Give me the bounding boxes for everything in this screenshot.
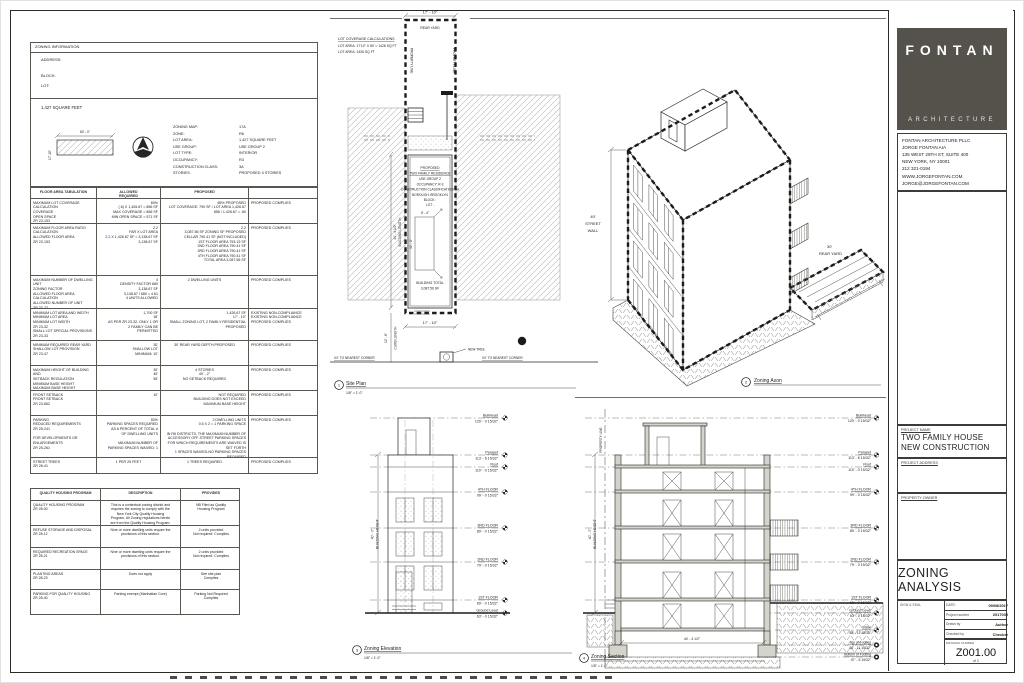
logo-subtitle: ARCHITECTURE <box>897 117 1007 123</box>
field-label: ZONE: <box>173 132 239 136</box>
room-dim-h: 32' - 0" <box>409 239 413 249</box>
row-status: PROPOSED COMPLIES <box>249 366 319 390</box>
table-row: MINIMUM LOT AREA AND WIDTH MINIMUM LOT A… <box>31 309 317 341</box>
row-item: REFUSE STORAGE AND DISPOSAL ZR 28-12 <box>31 526 101 547</box>
row-provided: See site plan Complies <box>181 570 241 589</box>
fat-col-header: ALLOWED REQUIRED <box>97 188 161 198</box>
row-allowed: 4 DENSITY FACTOR 680 3,138.67 SF 3,138.6… <box>97 276 161 308</box>
level-marker: Bottom of Footing 57' - 5 15/32" <box>844 653 879 662</box>
qh-col-header: PROVIDED <box>181 489 241 500</box>
property-owner-label: PROPERTY OWNER <box>898 494 1006 500</box>
svg-text:113' - 6 15/32": 113' - 6 15/32" <box>848 456 872 460</box>
svg-text:99' - 0 15/32": 99' - 0 15/32" <box>850 493 872 497</box>
building-total: BUILDING TOTAL <box>416 281 444 285</box>
svg-text:1/8" = 1'-0": 1/8" = 1'-0" <box>346 391 363 395</box>
field-label: ZONING MAP: <box>173 125 239 129</box>
row-status: PROPOSED COMPLIES <box>249 391 319 415</box>
svg-text:58' - 11 15/32": 58' - 11 15/32" <box>849 646 871 650</box>
contact-line: 135 WEST 29TH ST, SUITE 400 <box>902 151 1002 158</box>
lot-dim-top: 80' - 0" <box>80 130 90 134</box>
row-status: EXISTING NON-COMPLIANCE EXISTING NON-COM… <box>249 309 319 340</box>
front-facade <box>365 418 510 613</box>
row-description: Nine or more dwelling units require the … <box>101 548 181 569</box>
svg-text:Zoning Section: Zoning Section <box>591 654 625 660</box>
field-label: USE GROUP: <box>173 145 239 149</box>
svg-text:LOT :: LOT : <box>426 203 434 207</box>
row-proposed: 2.2 3,087.56 SF ZONING SF PROPOSED CELLA… <box>161 224 249 275</box>
svg-text:2ND FLOOR: 2ND FLOOR <box>477 558 498 562</box>
svg-text:99' - 0 15/32": 99' - 0 15/32" <box>477 493 499 497</box>
level-marker: 3RD FLOOR 89' - 0 15/32" <box>477 524 507 534</box>
row-status: PROPOSED COMPLIES <box>249 416 319 457</box>
svg-text:3RD FLOOR: 3RD FLOOR <box>477 524 498 528</box>
row-proposed: 2 DWELLING UNITS 0.5 X 2 = 1 PARKING SPA… <box>161 416 249 457</box>
row-description: Parking exempt (Manhattan Core) <box>101 590 181 614</box>
field-value: USE GROUP 2 <box>239 145 317 149</box>
svg-text:1/8" = 1'-0": 1/8" = 1'-0" <box>591 664 608 668</box>
checked-by-value: Checker <box>972 632 1008 637</box>
svg-text:NEW TREE: NEW TREE <box>468 348 485 352</box>
table-row: MAXIMUM HEIGHT OF BUILDING AND SETBACK R… <box>31 366 317 391</box>
sheet-of: of 2 <box>945 659 1007 663</box>
contact-line: WWW.JORGEFONTAN.COM <box>902 173 1002 180</box>
svg-text:3,087.56 SF: 3,087.56 SF <box>421 287 439 291</box>
level-marker: Bulkhead 120' - 0 15/32" <box>848 413 879 423</box>
row-proposed: 1 TREES REQUIRED <box>161 458 249 473</box>
row-item: PARKING REDUCED REQUIREMENTS ZR 25-241 F… <box>31 416 97 457</box>
svg-text:4: 4 <box>583 656 586 661</box>
building-length-label: BUILDING LENGTH <box>398 217 402 247</box>
svg-text:4TH FLOOR: 4TH FLOOR <box>478 488 499 492</box>
svg-text:CONSTRUCTION CLASSIFICATION: 3: CONSTRUCTION CLASSIFICATION: 3A <box>401 188 460 192</box>
seal-label: SIGN & SEAL <box>900 603 921 607</box>
svg-text:LOT AREA: 1426 SQ FT: LOT AREA: 1426 SQ FT <box>338 50 375 54</box>
svg-text:79' - 0 15/32": 79' - 0 15/32" <box>477 563 499 567</box>
level-marker: Parapet 113' - 6 15/32" <box>848 450 879 460</box>
zoning-axon-title: 2 Zoning Axon <box>742 378 881 387</box>
svg-text:REAR YARD: REAR YARD <box>819 251 842 256</box>
row-status: PROPOSED COMPLIES <box>249 199 319 223</box>
svg-text:TWO FAMILY RESIDENCE: TWO FAMILY RESIDENCE <box>409 172 451 176</box>
field-label: STORIES: <box>173 171 239 175</box>
zoning-elevation-title: 3 Zoning Elevation 1/8" = 1'-0" <box>353 646 572 660</box>
seal-box: SIGN & SEAL <box>898 601 945 665</box>
date-value: 09/08/2017 <box>972 603 1008 608</box>
svg-text:BUILDING HEIGHT: BUILDING HEIGHT <box>376 519 380 549</box>
row-item: MAXIMUM HEIGHT OF BUILDING AND SETBACK R… <box>31 366 97 390</box>
row-provided: 2 units provided Not required. Complies <box>181 526 241 547</box>
project-address-box: PROJECT ADDRESS <box>897 458 1007 493</box>
row-provided: NB Filed as Quality Housing Program <box>181 501 241 525</box>
curb-label: CURB LENGTH <box>394 326 398 350</box>
table-row: REFUSE STORAGE AND DISPOSAL ZR 28-12 Nin… <box>31 526 239 548</box>
row-item: STREET TREES ZR 26-41 <box>31 458 97 473</box>
building-height-dim: 40' - 0" BUILDING HEIGHT <box>371 452 382 615</box>
building-height-dim: 40' - 0" BUILDING HEIGHT <box>588 452 598 615</box>
room-dim-w: 8' - 4" <box>421 211 429 215</box>
row-allowed: 30' SHALLOW LOT MINIMUM: 10' <box>97 341 161 365</box>
row-allowed: 2.2 FAR X LOT AREA 2.2 X 1,426.67 SF = 3… <box>97 224 161 275</box>
zoning-elevation-drawing: 40' - 0" BUILDING HEIGHT Bulkhead 120' -… <box>350 400 575 668</box>
row-item: MAXIMUM LOT COVERAGE CALCULATION COVERAG… <box>31 199 97 223</box>
svg-text:40' - 0": 40' - 0" <box>588 528 592 539</box>
row-item: QUALITY HOUSING PROGRAM ZR 28-00 <box>31 501 101 525</box>
lot-diagram: 80' - 0" 17'-10" <box>45 119 170 179</box>
table-row: FRONT SETBACK FRONT SETBACK ZR 23-662 10… <box>31 391 317 416</box>
level-marker: Roof 110' - 0 15/32" <box>475 463 507 473</box>
svg-text:Parapet: Parapet <box>858 450 871 454</box>
row-status: PROPOSED COMPLIES <box>249 224 319 275</box>
corner-note-right: XX' TO NEAREST CORNER <box>482 356 523 360</box>
contact-line: JORGE FONTAN AIA <box>902 144 1002 151</box>
contact-line: 212 321-0194 <box>902 165 1002 172</box>
drawing-number-label: DRAWING NUMBER <box>946 641 974 645</box>
svg-text:PROPOSED: PROPOSED <box>420 166 440 170</box>
date-label: DATE: <box>946 603 972 607</box>
row-status: PROPOSED COMPLIES <box>249 341 319 365</box>
lot-dim-side: 17'-10" <box>48 150 52 160</box>
field-value: R6 <box>239 132 317 136</box>
drawing-number-box: DRAWING NUMBER Z001.00 of 2 <box>945 639 1007 669</box>
building-length-dim: 44' - 4 1/2" <box>393 224 397 239</box>
quality-housing-table: QUALITY HOUSING PROGRAM DESCRIPTION PROV… <box>30 488 240 615</box>
svg-text:2ND FLOOR: 2ND FLOOR <box>850 557 871 561</box>
svg-text:63' - 0 15/32": 63' - 0 15/32" <box>850 614 872 618</box>
svg-text:3: 3 <box>356 648 359 653</box>
logo-wordmark: FONTAN <box>897 42 1007 58</box>
svg-text:Zoning Elevation: Zoning Elevation <box>364 646 401 652</box>
table-row: PARKING FOR QUALITY HOUSING ZR 28-40 Par… <box>31 590 239 615</box>
project-address-label: PROJECT ADDRESS <box>898 459 1006 465</box>
svg-text:LOT COVERAGE CALCULATIONS: LOT COVERAGE CALCULATIONS <box>338 37 395 41</box>
svg-text:79' - 0 15/32": 79' - 0 15/32" <box>850 563 872 567</box>
row-item: MINIMUM LOT AREA AND WIDTH MINIMUM LOT A… <box>31 309 97 340</box>
project-number-value: 2017030 <box>972 612 1008 617</box>
fat-col-header: FLOOR AREA TABULATION <box>31 188 97 198</box>
row-allowed: 10' <box>97 391 161 415</box>
level-marker: 4TH FLOOR 99' - 0 15/32" <box>477 488 507 498</box>
svg-text:LOT AREA: 17'10" X 80' = 1426: LOT AREA: 17'10" X 80' = 1426 SQ FT <box>338 44 397 48</box>
sheet-title-box: ZONING ANALYSIS <box>897 560 1007 600</box>
table-row: MINIMUM REQUIRED REAR YARD SHALLOW LOT P… <box>31 341 317 366</box>
table-row: MAXIMUM NUMBER OF DWELLING UNIT ZONING F… <box>31 276 317 309</box>
row-item: MAXIMUM FLOOR AREA RATIO CALCULATION ALL… <box>31 224 97 275</box>
new-tree: NEW TREE <box>440 348 485 363</box>
table-row: QUALITY HOUSING PROGRAM ZR 28-00 This is… <box>31 501 239 526</box>
table-row: PLANTING AREAS ZR 28-23 Does not apply S… <box>31 570 239 590</box>
qh-col-header: QUALITY HOUSING PROGRAM <box>31 489 101 500</box>
svg-text:WALL: WALL <box>588 228 600 233</box>
svg-text:3RD FLOOR: 3RD FLOOR <box>850 523 871 527</box>
level-marker: Roof 110' - 0 15/32" <box>848 462 879 472</box>
checked-by-label: Checked by <box>946 632 972 636</box>
row-provided: 2 units provided Not required. Complies <box>181 548 241 569</box>
svg-text:69' - 0 15/32": 69' - 0 15/32" <box>477 601 499 605</box>
field-value: PROPOSED 4 STORIES <box>239 171 317 175</box>
row-allowed: 50% PARKING SPACES REQUIRED AS A PERCENT… <box>97 416 161 457</box>
table-row: MAXIMUM LOT COVERAGE CALCULATION COVERAG… <box>31 199 317 224</box>
svg-text:110' - 0 15/32": 110' - 0 15/32" <box>475 468 499 472</box>
level-marker: Bulkhead 120' - 0 15/32" <box>475 414 507 424</box>
level-marker: 2ND FLOOR 79' - 0 15/32" <box>477 558 507 568</box>
row-status: PROPOSED COMPLIES <box>249 458 319 473</box>
zoning-info-title: ZONING INFORMATION <box>31 43 317 50</box>
svg-text:69' - 0 15/32": 69' - 0 15/32" <box>850 601 872 605</box>
rear-balconies <box>790 178 808 294</box>
row-proposed: NOT REQUIRED BUILDING DOES NOT EXCEED MA… <box>161 391 249 415</box>
curb-dim: 12' - 6" <box>384 333 388 343</box>
drawn-by-value: Author <box>972 622 1008 627</box>
project-name-line2: NEW CONSTRUCTION <box>898 442 1006 452</box>
svg-text:BUILDING HEIGHT: BUILDING HEIGHT <box>593 519 597 549</box>
svg-text:Roof: Roof <box>490 463 498 467</box>
property-line-label-left: PROPERTY LINE <box>410 48 414 73</box>
row-proposed: 30' REAR YARD DEPTH PROPOSED <box>161 341 249 365</box>
block-label: BLOCK: <box>41 74 56 79</box>
svg-text:Bulkhead: Bulkhead <box>483 414 498 418</box>
fat-col-header: PROPOSED <box>161 188 249 198</box>
row-item: PARKING FOR QUALITY HOUSING ZR 28-40 <box>31 590 101 614</box>
svg-text:89' - 0 15/32": 89' - 0 15/32" <box>850 529 872 533</box>
svg-text:1ST FLOOR: 1ST FLOOR <box>851 595 871 599</box>
drawn-by-label: Drawn by <box>946 622 972 626</box>
title-block: FONTAN ARCHITECTURE FONTAN ARCHITECTURE … <box>888 10 1013 671</box>
corner-note-left: XX' TO NEAREST CORNER <box>334 356 375 360</box>
row-proposed: 1,426.67 SF 17' - 10" SMALL ZONING LOT, … <box>161 309 249 340</box>
zoning-fields: ZONING MAP:17A ZONE:R6 LOT AREA:1,427 SQ… <box>173 125 317 175</box>
row-description: Does not apply <box>101 570 181 589</box>
table-row: STREET TREES ZR 26-41 1 PER 25 FEET 1 TR… <box>31 458 317 474</box>
row-allowed: 1,700 SF 18' AS PER ZR 23-32, ONLY 1 OR … <box>97 309 161 340</box>
bottom-dim: 44' - 4 1/2" <box>619 637 766 645</box>
project-name-line1: TWO FAMILY HOUSE <box>898 432 1006 442</box>
svg-text:89' - 0 15/32": 89' - 0 15/32" <box>477 529 499 533</box>
firm-contact-info: FONTAN ARCHITECTURE PLLC JORGE FONTAN AI… <box>897 133 1007 191</box>
level-marker: Ground Level 63' - 0 15/32" <box>476 609 507 619</box>
row-description: This is a contextual zoning district and… <box>101 501 181 525</box>
row-item: MINIMUM REQUIRED REAR YARD SHALLOW LOT P… <box>31 341 97 365</box>
level-marker: 3RD FLOOR 89' - 0 15/32" <box>850 523 879 533</box>
meta-box: SIGN & SEAL DATE:09/08/2017 Project numb… <box>897 600 1007 664</box>
svg-text:44' - 4 1/2": 44' - 4 1/2" <box>684 637 701 641</box>
address-label: ADDRESS: <box>41 58 61 63</box>
svg-text:Top of Footing: Top of Footing <box>850 641 872 645</box>
svg-text:1ST FLOOR: 1ST FLOOR <box>478 596 498 600</box>
north-arrow-icon <box>133 137 153 158</box>
svg-text:Bottom of Footing: Bottom of Footing <box>844 653 871 657</box>
row-description: Nine or more dwelling units require the … <box>101 526 181 547</box>
contact-line: JORGE@JORGEFONTAN.COM <box>902 180 1002 187</box>
field-value: INTERIOR <box>239 151 317 155</box>
fontan-logo: FONTAN ARCHITECTURE <box>897 28 1007 130</box>
svg-text:120' - 0 15/32": 120' - 0 15/32" <box>848 419 872 423</box>
svg-text:1/8" = 1'-0": 1/8" = 1'-0" <box>364 656 381 660</box>
row-item: MAXIMUM NUMBER OF DWELLING UNIT ZONING F… <box>31 276 97 308</box>
field-value: 1,427 SQUARE FEET <box>239 138 317 142</box>
meta-rows: DATE:09/08/2017 Project number2017030 Dr… <box>945 601 1007 669</box>
table-row: MAXIMUM FLOOR AREA RATIO CALCULATION ALL… <box>31 224 317 276</box>
field-label: LOT AREA: <box>173 138 239 142</box>
svg-text:63' - 0 15/32": 63' - 0 15/32" <box>477 614 499 618</box>
field-label: LOT TYPE: <box>173 151 239 155</box>
svg-text:BLOCK :: BLOCK : <box>424 198 437 202</box>
site-bottom-dim: 17' - 10" <box>423 320 438 325</box>
level-marker: Parapet 113' - 6 15/32" <box>475 451 507 461</box>
svg-text:2: 2 <box>745 380 748 385</box>
row-provided: Parking Not Required Complies <box>181 590 241 614</box>
contact-line: FONTAN ARCHITECTURE PLLC <box>902 137 1002 144</box>
building-footprint: PROPOSED TWO FAMILY RESIDENCE USE GROUP … <box>401 155 460 314</box>
level-marker: 2ND FLOOR 79' - 0 15/32" <box>850 557 879 567</box>
level-marker: 4TH FLOOR 99' - 0 15/32" <box>850 487 879 497</box>
row-item: FRONT SETBACK FRONT SETBACK ZR 23-662 <box>31 391 97 415</box>
svg-text:40' - 0": 40' - 0" <box>371 528 375 539</box>
table-row: REQUIRED RECREATION SPACE ZR 28-21 Nine … <box>31 548 239 570</box>
svg-text:113' - 6 15/32": 113' - 6 15/32" <box>475 456 499 460</box>
svg-text:PROPERTY LINE: PROPERTY LINE <box>599 427 603 452</box>
project-name-box: PROJECT NAME TWO FAMILY HOUSE NEW CONSTR… <box>897 425 1007 458</box>
svg-text:4TH FLOOR: 4TH FLOOR <box>851 487 872 491</box>
svg-text:58' - 11 15/32": 58' - 11 15/32" <box>849 631 871 635</box>
lot-area-title: 1,427 SQUARE FEET <box>41 105 82 110</box>
field-label: CONSTRUCTION CLASS: <box>173 165 239 169</box>
svg-text:USE GROUP 2: USE GROUP 2 <box>419 177 441 181</box>
bottom-scale-ticks <box>170 676 620 679</box>
site-top-dim: 17' - 10" <box>423 10 438 15</box>
row-proposed: 2 DWELLING UNITS <box>161 276 249 308</box>
row-allowed: 1 PER 25 FEET <box>97 458 161 473</box>
footing-right <box>758 645 776 657</box>
row-proposed: 4 STORIES 40' - 2" NO SETBACK REQUIRED <box>161 366 249 390</box>
building-section <box>605 423 798 657</box>
existing-tree <box>518 337 526 345</box>
row-item: REQUIRED RECREATION SPACE ZR 28-21 <box>31 548 101 569</box>
row-allowed: 60% (.6) X 1,426.67 = 856 SF MAX COVERAG… <box>97 199 161 223</box>
lot-label: LOT: <box>41 84 49 89</box>
field-value: 17A <box>239 125 317 129</box>
svg-text:57' - 5 15/32": 57' - 5 15/32" <box>851 658 872 662</box>
fat-col-header <box>249 188 319 198</box>
svg-text:40': 40' <box>590 214 595 219</box>
lot-info-box: 1,427 SQUARE FEET 80' - 0" 17'-10" ZONIN… <box>30 99 318 187</box>
zoning-info-header: ZONING INFORMATION <box>30 42 318 53</box>
adjacent-building-left <box>348 108 405 300</box>
contact-line: NEW YORK, NY 10001 <box>902 158 1002 165</box>
svg-text:BOROUGH: BROOKLYN: BOROUGH: BROOKLYN <box>412 193 448 197</box>
address-box: ADDRESS: BLOCK: LOT: <box>30 53 318 99</box>
svg-text:Bulkhead: Bulkhead <box>856 413 871 417</box>
street-wall-dim: 40' STREET WALL <box>585 147 626 302</box>
site-marker-flag <box>441 91 453 95</box>
front-stoop <box>605 600 615 608</box>
rear-balconies <box>770 520 798 601</box>
svg-text:Zoning Axon: Zoning Axon <box>754 378 782 384</box>
rear-steps <box>408 108 423 122</box>
field-label: OCCUPANCY: <box>173 158 239 162</box>
svg-text:Site Plan: Site Plan <box>346 381 366 387</box>
lot-coverage-note: LOT COVERAGE CALCULATIONS LOT AREA: 17'1… <box>338 37 397 54</box>
row-proposed: 65% PROPOSED LOT COVERAGE: 790 SF / LOT … <box>161 199 249 223</box>
svg-text:Roof: Roof <box>863 462 871 466</box>
svg-text:Parapet: Parapet <box>485 451 498 455</box>
svg-text:120' - 0 15/32": 120' - 0 15/32" <box>475 419 499 423</box>
sheet-title: ZONING ANALYSIS <box>898 566 1006 594</box>
qh-col-header: DESCRIPTION <box>101 489 181 500</box>
svg-text:Ground Level: Ground Level <box>476 609 498 613</box>
adjacent-building-right <box>456 95 560 300</box>
field-value: 3A <box>239 165 317 169</box>
table-row: PARKING REDUCED REQUIREMENTS ZR 25-241 F… <box>31 416 317 458</box>
property-owner-box: PROPERTY OWNER <box>897 493 1007 560</box>
svg-text:30': 30' <box>827 244 832 249</box>
yard-gravel <box>408 136 452 150</box>
svg-text:OCCUPANCY: R-3: OCCUPANCY: R-3 <box>417 182 444 186</box>
svg-text:1: 1 <box>338 383 341 388</box>
row-status: PROPOSED COMPLIES <box>249 276 319 308</box>
row-item: PLANTING AREAS ZR 28-23 <box>31 570 101 589</box>
floor-area-table: FLOOR AREA TABULATION ALLOWED REQUIRED P… <box>30 187 318 474</box>
rear-yard-label: REAR YARD <box>420 26 440 30</box>
svg-text:STREET: STREET <box>585 221 601 226</box>
site-plan-drawing: LOT COVERAGE CALCULATIONS LOT AREA: 17'1… <box>330 8 600 400</box>
project-number-label: Project number <box>946 613 972 617</box>
svg-text:Ground Level: Ground Level <box>849 608 871 612</box>
svg-text:Cellar: Cellar <box>862 626 872 630</box>
property-line-label-right: PROPERTY LINE <box>452 48 456 73</box>
consultant-box <box>897 191 1007 425</box>
zoning-section-drawing: PROPERTY LINE 40' - 0" BUILDING HEIGHT 4… <box>575 395 885 671</box>
level-marker: 1ST FLOOR 69' - 0 15/32" <box>477 596 507 606</box>
site-plan-title: 1 Site Plan 1/8" = 1'-0" <box>335 381 576 395</box>
zoning-axon-drawing: 40' STREET WALL 30' REAR YARD 2 Zoning A… <box>575 20 885 392</box>
svg-text:110' - 0 15/32": 110' - 0 15/32" <box>848 468 872 472</box>
row-allowed: 30' 45' 55' <box>97 366 161 390</box>
field-value: R3 <box>239 158 317 162</box>
